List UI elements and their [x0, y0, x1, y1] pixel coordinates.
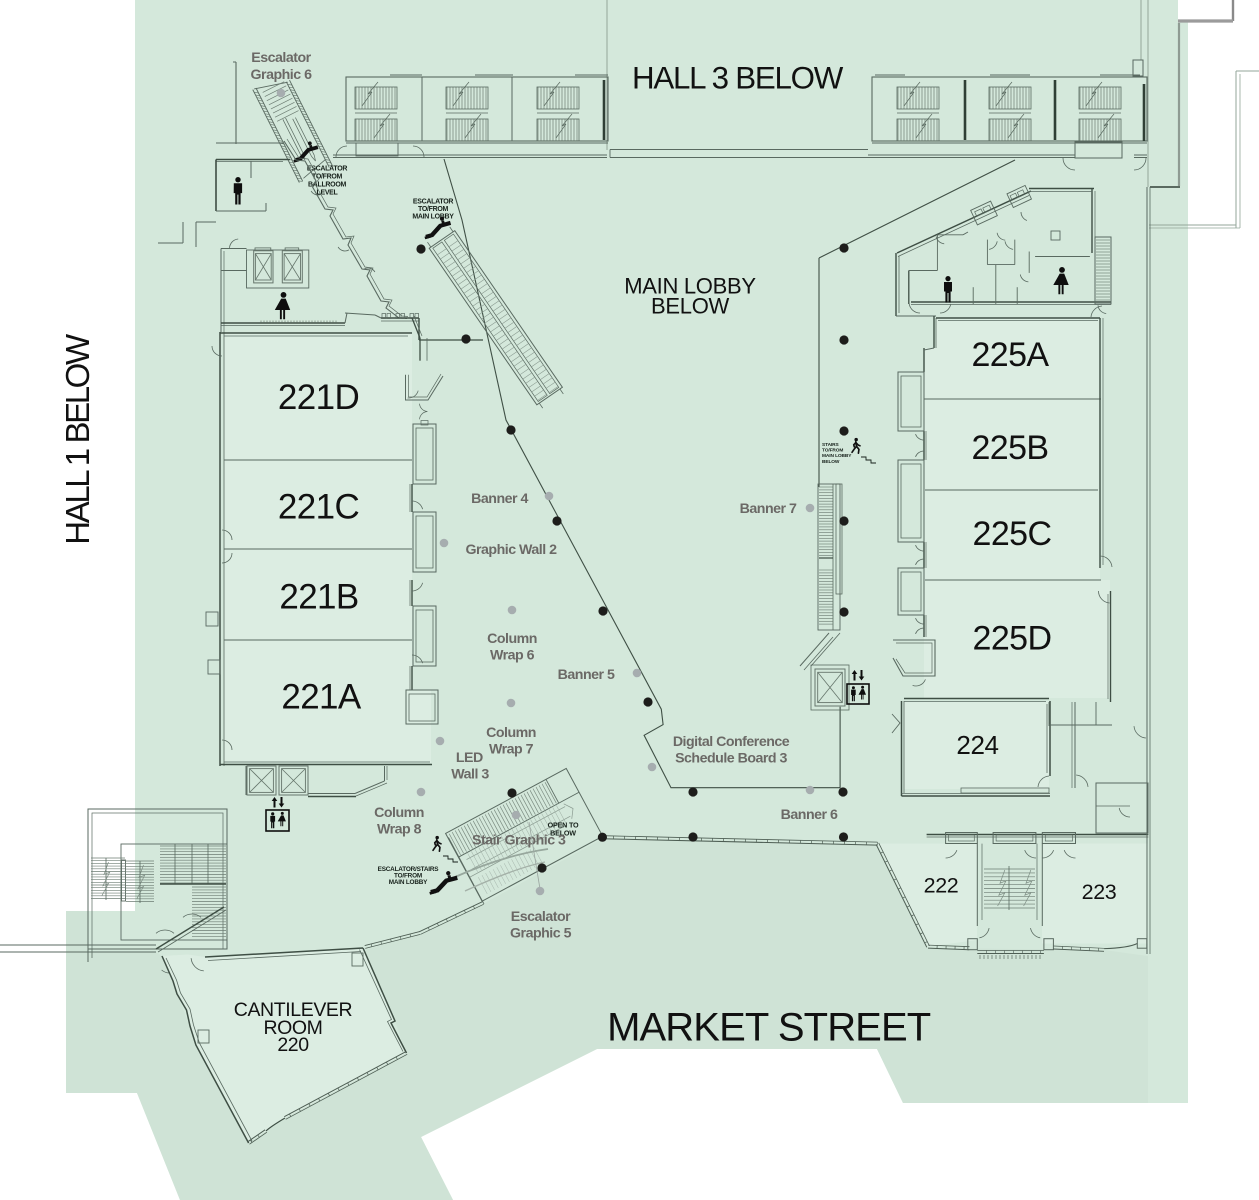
svg-text:Wall 3: Wall 3	[451, 767, 489, 783]
svg-text:Banner 5: Banner 5	[558, 667, 615, 683]
svg-text:TO/FROM: TO/FROM	[418, 206, 449, 213]
svg-text:221B: 221B	[279, 578, 358, 617]
svg-text:HALL 3 BELOW: HALL 3 BELOW	[632, 61, 844, 96]
svg-text:Wrap 6: Wrap 6	[490, 648, 535, 664]
svg-text:Graphic Wall 2: Graphic Wall 2	[465, 542, 557, 558]
svg-text:Column: Column	[374, 805, 424, 821]
svg-text:BALLROOM: BALLROOM	[308, 182, 347, 189]
svg-text:STAIRS: STAIRS	[822, 442, 840, 448]
svg-text:Wrap 8: Wrap 8	[377, 822, 422, 838]
svg-text:Wrap 7: Wrap 7	[489, 742, 534, 758]
svg-text:MAIN LOBBY: MAIN LOBBY	[412, 214, 454, 221]
svg-text:Digital Conference: Digital Conference	[673, 734, 790, 750]
svg-text:MAIN LOBBY: MAIN LOBBY	[389, 879, 428, 886]
svg-text:MARKET STREET: MARKET STREET	[607, 1006, 931, 1050]
svg-text:225A: 225A	[971, 336, 1049, 374]
svg-text:Graphic 5: Graphic 5	[510, 926, 572, 942]
svg-text:221A: 221A	[281, 678, 362, 717]
svg-text:221C: 221C	[278, 488, 359, 527]
svg-text:BELOW: BELOW	[822, 459, 840, 465]
svg-text:Column: Column	[487, 631, 537, 647]
svg-text:Column: Column	[486, 725, 536, 741]
svg-text:225C: 225C	[973, 515, 1052, 553]
svg-text:224: 224	[956, 730, 998, 760]
svg-text:Escalator: Escalator	[251, 50, 311, 66]
svg-text:220: 220	[277, 1034, 309, 1056]
svg-text:BELOW: BELOW	[651, 294, 729, 319]
svg-text:Escalator: Escalator	[511, 909, 571, 925]
svg-text:MAIN LOBBY: MAIN LOBBY	[822, 453, 852, 459]
svg-text:TO/FROM: TO/FROM	[822, 448, 843, 454]
svg-text:HALL 1 BELOW: HALL 1 BELOW	[59, 333, 96, 545]
svg-text:225D: 225D	[973, 620, 1052, 658]
svg-text:ESCALATOR: ESCALATOR	[307, 166, 347, 173]
svg-text:Banner 6: Banner 6	[781, 807, 838, 823]
svg-text:ESCALATOR: ESCALATOR	[413, 199, 453, 206]
svg-text:Banner 7: Banner 7	[740, 501, 797, 517]
svg-text:Stair Graphic 3: Stair Graphic 3	[472, 833, 566, 849]
svg-text:221D: 221D	[278, 378, 359, 417]
svg-text:LED: LED	[456, 750, 483, 766]
svg-text:Schedule Board 3: Schedule Board 3	[675, 751, 787, 767]
svg-text:225B: 225B	[971, 429, 1048, 467]
svg-text:Banner 4: Banner 4	[471, 491, 528, 507]
svg-text:Graphic 6: Graphic 6	[251, 67, 313, 83]
svg-text:222: 222	[924, 874, 959, 898]
svg-text:223: 223	[1082, 880, 1117, 904]
